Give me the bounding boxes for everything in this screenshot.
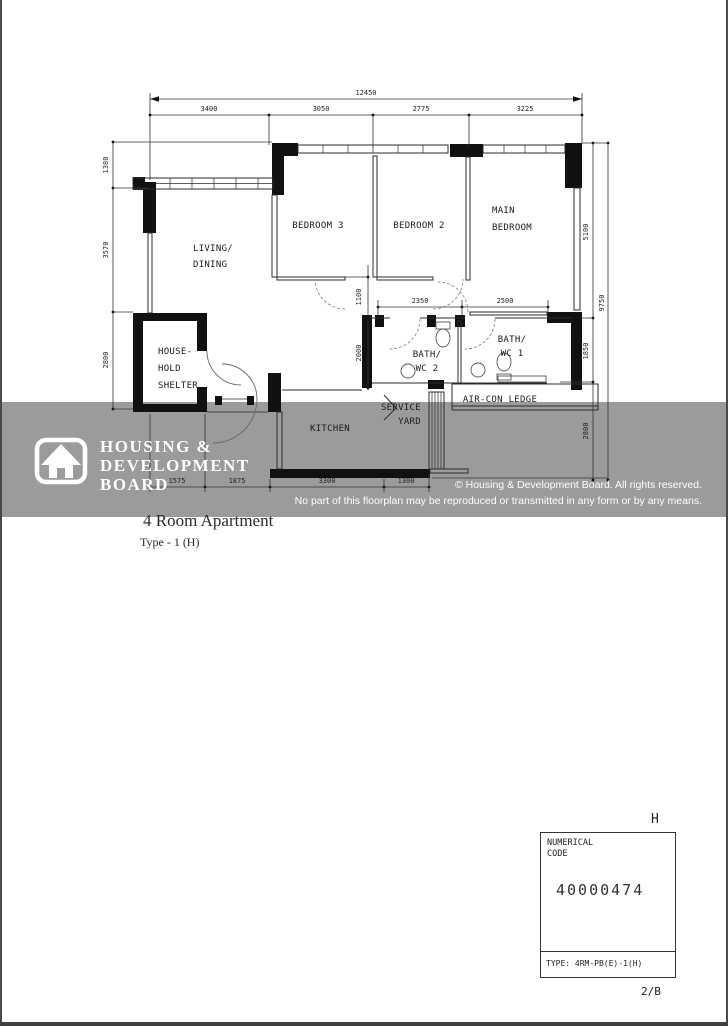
label-shelter-1: HOUSE- xyxy=(158,347,192,357)
label-bath-wc1-2: WC 1 xyxy=(501,349,524,359)
dim-bath-depth: 2000 xyxy=(355,345,363,362)
copyright-line1: © Housing & Development Board. All right… xyxy=(142,478,702,494)
orientation-letter: H xyxy=(651,812,659,827)
dim-top-total: 12450 xyxy=(355,89,376,97)
dim-top-seg-1: 3400 xyxy=(201,105,218,113)
copyright-notice: © Housing & Development Board. All right… xyxy=(142,478,702,509)
label-living-2: DINING xyxy=(193,260,227,270)
floorplan-page: { "page": { "title": "4 Room Apartment",… xyxy=(0,0,728,1026)
dim-corridor: 1100 xyxy=(355,289,363,306)
dim-left-3: 2800 xyxy=(102,352,110,369)
room-labels: LIVING/ DINING BEDROOM 3 BEDROOM 2 MAIN … xyxy=(158,206,537,434)
dimension-labels: 12450 3400 3050 2775 3225 1380 3570 2800… xyxy=(102,89,606,485)
dim-bath1-width: 2500 xyxy=(497,297,514,305)
label-bath-wc1-1: BATH/ xyxy=(498,335,527,345)
dim-right-3: 2800 xyxy=(582,423,590,440)
page-ref: 2/B xyxy=(641,985,661,998)
label-aircon-ledge: AIR-CON LEDGE xyxy=(463,395,537,405)
walls-solid xyxy=(133,143,582,478)
label-bath-wc2-2: WC 2 xyxy=(416,364,439,374)
type-label: TYPE: 4RM-PB(E)-1(H) xyxy=(546,959,642,968)
label-main-bedroom-1: MAIN xyxy=(492,206,515,216)
dim-right-1: 5100 xyxy=(582,224,590,241)
dim-left-2: 3570 xyxy=(102,242,110,259)
label-bedroom2: BEDROOM 2 xyxy=(393,221,444,231)
page-edge-bottom xyxy=(0,1022,728,1026)
label-shelter-2: HOLD xyxy=(158,364,181,374)
type-row: TYPE: 4RM-PB(E)-1(H) xyxy=(541,951,675,977)
label-living-1: LIVING/ xyxy=(193,244,233,254)
label-bedroom3: BEDROOM 3 xyxy=(292,221,343,231)
hdb-wordmark-line2: DEVELOPMENT xyxy=(100,456,250,475)
dim-right-2: 1850 xyxy=(582,343,590,360)
hdb-wordmark-line1: HOUSING & xyxy=(100,437,250,456)
plan-title: 4 Room Apartment xyxy=(143,511,273,531)
copyright-line2: No part of this floorplan may be reprodu… xyxy=(142,494,702,510)
label-shelter-3: SHELTER xyxy=(158,381,198,391)
dim-bath2-width: 2350 xyxy=(412,297,429,305)
label-service-yard-2: YARD xyxy=(398,417,421,427)
dim-top-seg-4: 3225 xyxy=(517,105,534,113)
label-main-bedroom-2: BEDROOM xyxy=(492,223,532,233)
plan-subtitle: Type - 1 (H) xyxy=(140,535,199,550)
numerical-code-label: NUMERICAL CODE xyxy=(547,838,593,860)
door-arcs xyxy=(207,279,495,443)
label-kitchen: KITCHEN xyxy=(310,424,350,434)
dim-right-total: 9750 xyxy=(598,295,606,312)
numerical-code-value: 40000474 xyxy=(556,881,644,899)
dim-top-seg-3: 2775 xyxy=(413,105,430,113)
label-bath-wc2-1: BATH/ xyxy=(413,350,442,360)
dim-left-1: 1380 xyxy=(102,157,110,174)
numerical-code-box: NUMERICAL CODE 40000474 TYPE: 4RM-PB(E)-… xyxy=(540,832,676,978)
page-edge-left xyxy=(0,0,2,1026)
dim-top-seg-2: 3050 xyxy=(313,105,330,113)
label-service-yard-1: SERVICE xyxy=(381,403,421,413)
walls-thin xyxy=(133,145,598,473)
